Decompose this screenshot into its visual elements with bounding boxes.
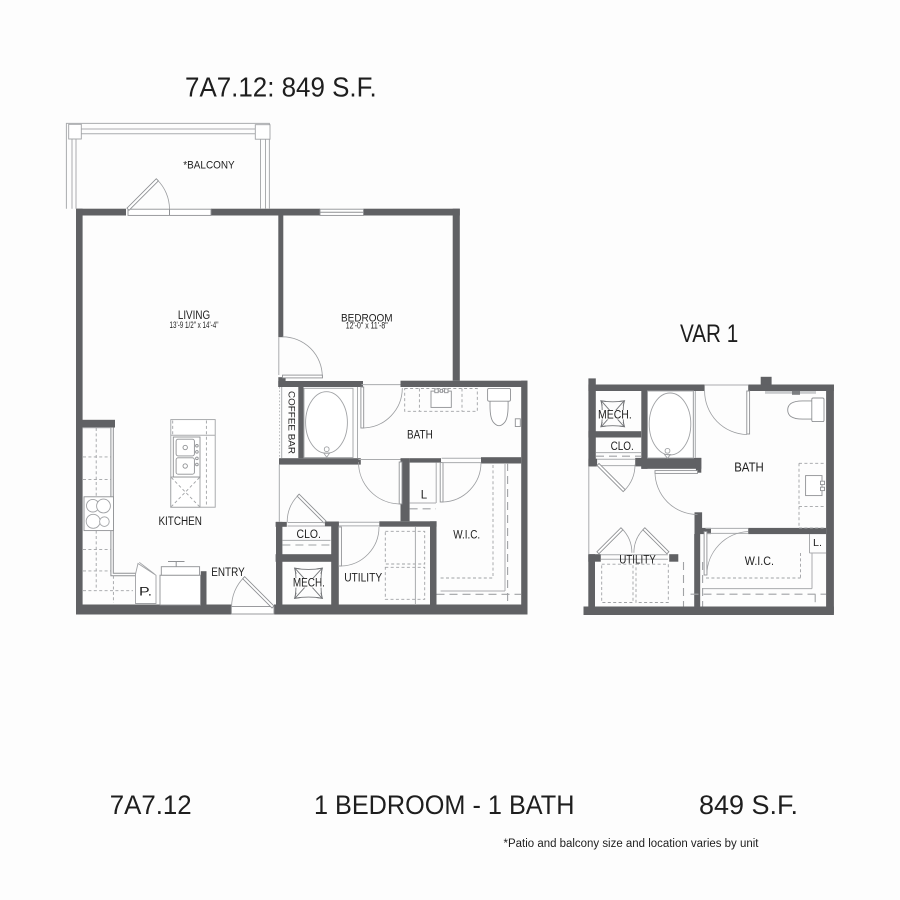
svg-text:7A7.12: 7A7.12 xyxy=(110,790,192,820)
svg-text:P.: P. xyxy=(139,586,152,598)
svg-text:L.: L. xyxy=(813,537,822,549)
svg-text:CLO.: CLO. xyxy=(297,529,321,541)
svg-text:*Patio and balcony size and lo: *Patio and balcony size and location var… xyxy=(504,838,760,850)
svg-text:MECH.: MECH. xyxy=(598,408,632,422)
svg-text:*BALCONY: *BALCONY xyxy=(183,160,235,172)
svg-text:12'-0" x 11'-8": 12'-0" x 11'-8" xyxy=(346,321,388,331)
svg-text:849 S.F.: 849 S.F. xyxy=(699,790,798,820)
svg-text:VAR 1: VAR 1 xyxy=(680,320,738,348)
svg-text:7A7.12: 849 S.F.: 7A7.12: 849 S.F. xyxy=(185,71,377,102)
svg-text:L: L xyxy=(421,490,428,502)
svg-text:CLO.: CLO. xyxy=(611,441,634,453)
svg-text:13'-9 1/2" x 14'-4": 13'-9 1/2" x 14'-4" xyxy=(170,320,219,330)
svg-text:KITCHEN: KITCHEN xyxy=(158,514,202,528)
svg-text:W.I.C.: W.I.C. xyxy=(453,530,480,542)
svg-text:COFFEE BAR: COFFEE BAR xyxy=(286,391,297,454)
svg-text:BATH: BATH xyxy=(407,428,433,442)
svg-text:MECH.: MECH. xyxy=(293,576,325,590)
svg-text:UTILITY: UTILITY xyxy=(344,570,382,584)
svg-text:ENTRY: ENTRY xyxy=(211,565,244,579)
svg-text:BATH: BATH xyxy=(734,461,764,475)
svg-text:1 BEDROOM - 1 BATH: 1 BEDROOM - 1 BATH xyxy=(314,790,575,820)
svg-text:UTILITY: UTILITY xyxy=(619,552,656,566)
svg-text:W.I.C.: W.I.C. xyxy=(745,554,774,568)
